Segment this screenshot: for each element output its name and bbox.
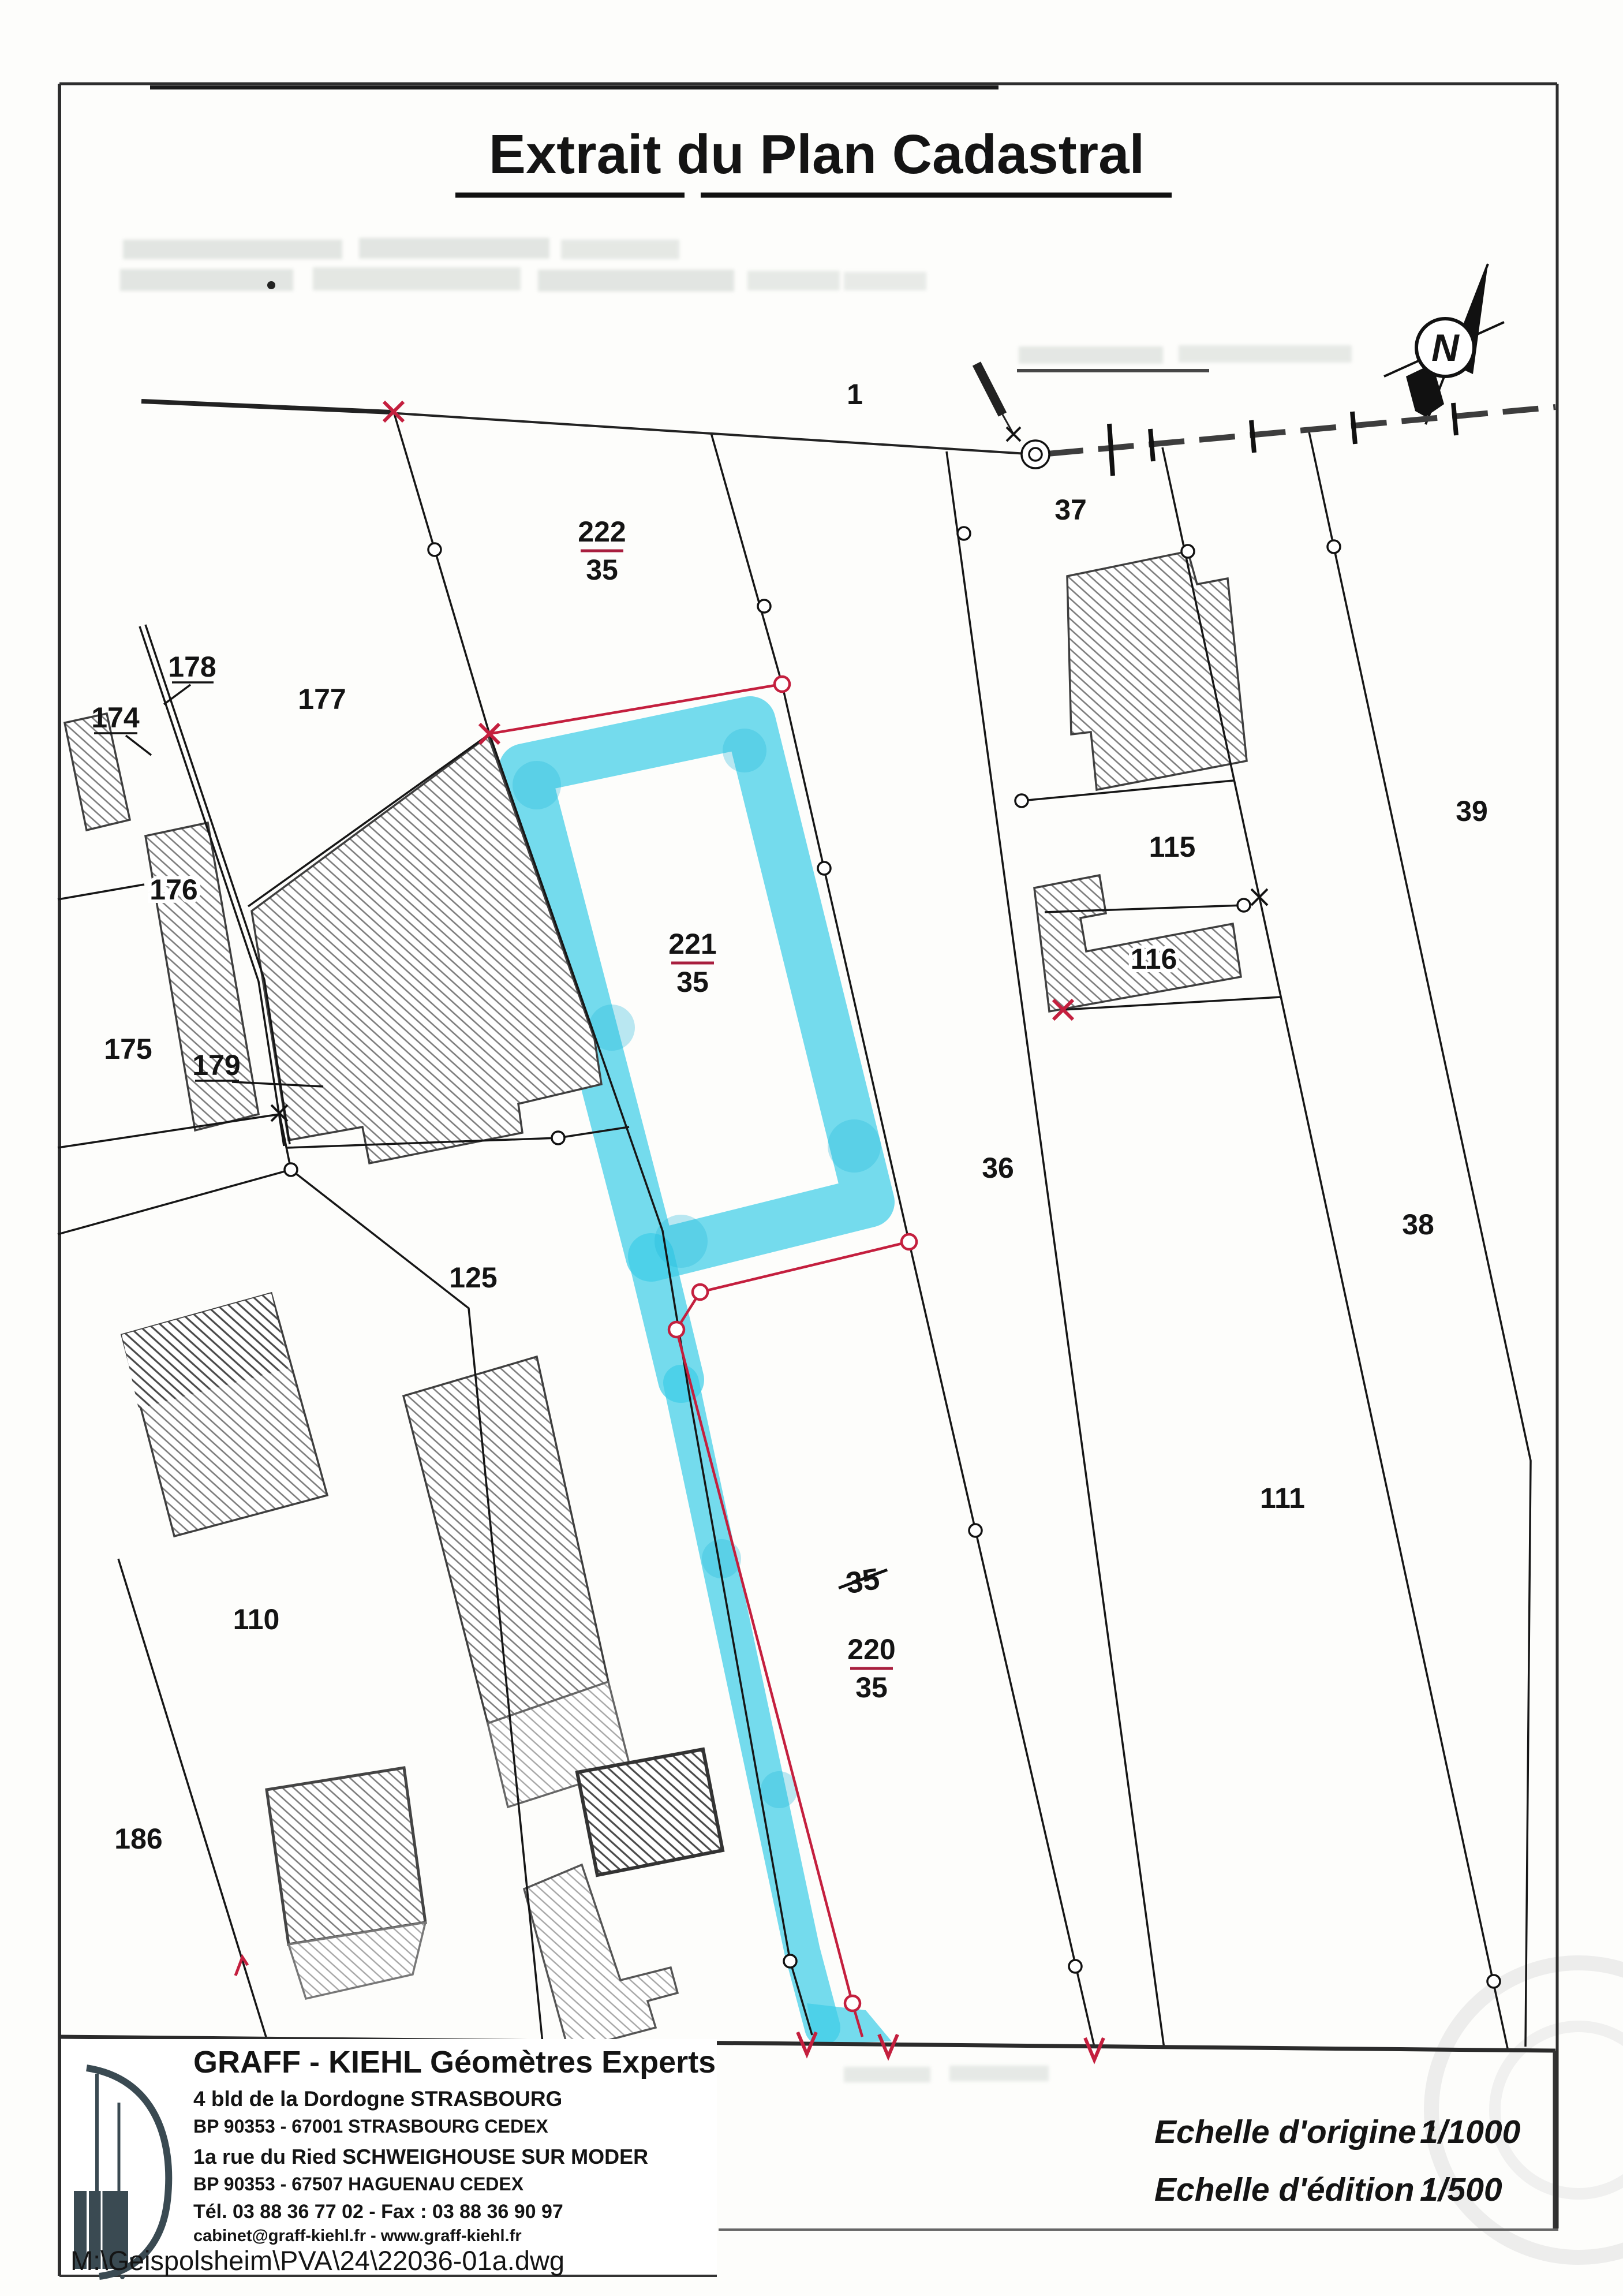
firm-web: cabinet@graff-kiehl.fr - www.graff-kiehl…	[193, 2227, 522, 2245]
firm-telfax: Tél. 03 88 36 77 02 - Fax : 03 88 36 90 …	[193, 2201, 563, 2223]
parcel-label-174: 174	[91, 701, 140, 734]
north-letter: N	[1431, 326, 1460, 369]
scale-edition-value: 1/500	[1420, 2171, 1502, 2208]
parcel-label-178: 178	[168, 651, 216, 683]
fraction-222-35: 222 35	[578, 516, 626, 586]
fraction-220-35: 220 35	[847, 1633, 895, 1704]
parcel-label-115: 115	[1149, 831, 1196, 863]
file-path: M:\Geispolsheim\PVA\24\22036-01a.dwg	[70, 2245, 564, 2276]
parcel-label-125: 125	[449, 1261, 497, 1294]
building-zigzag	[524, 1865, 678, 2051]
parcel-label-36: 36	[982, 1152, 1014, 1184]
scale-edition-label: Echelle d'édition :	[1154, 2171, 1434, 2208]
vertex-markers	[285, 440, 1500, 1988]
parcel-label-116: 116	[1131, 943, 1177, 975]
cadastral-sheet: Extrait du Plan Cadastral N	[0, 0, 1623, 2296]
fraction-den: 35	[855, 1671, 888, 1704]
parcel-label-186: 186	[114, 1823, 162, 1855]
faded-road-label	[1017, 345, 1352, 371]
north-arrow: N	[1384, 264, 1504, 424]
parcel-label-38: 38	[1402, 1208, 1434, 1241]
parcel-label-179: 179	[192, 1049, 240, 1081]
fraction-num: 220	[847, 1633, 895, 1666]
building-dark-block	[577, 1749, 723, 1875]
parcel-label-177: 177	[298, 683, 346, 715]
firm-block: GRAFF - KIEHL Géomètres Experts 4 bld de…	[59, 2039, 717, 2279]
road-double-circle-inner	[1029, 448, 1042, 461]
building-37	[1067, 551, 1247, 790]
fraction-den: 35	[676, 966, 709, 998]
faded-header-text	[120, 238, 926, 292]
stamp-watermark	[1431, 1963, 1623, 2257]
parcel-label-1: 1	[847, 378, 863, 410]
faded-street-label	[844, 2066, 1049, 2082]
frame-top-dark-band	[150, 85, 999, 89]
cadastral-map: Extrait du Plan Cadastral N	[0, 0, 1623, 2296]
parcel-label-110: 110	[233, 1603, 280, 1636]
firm-address-1: 4 bld de la Dordogne STRASBOURG	[193, 2087, 562, 2111]
fraction-den: 35	[586, 554, 618, 586]
stray-ink-dot	[267, 281, 275, 289]
building-186-block	[267, 1768, 425, 1944]
page-title: Extrait du Plan Cadastral	[489, 124, 1145, 185]
firm-address-4: BP 90353 - 67507 HAGUENAU CEDEX	[193, 2174, 524, 2194]
fraction-num: 222	[578, 516, 626, 548]
boundary-cross-ticks	[1109, 403, 1456, 476]
parcel-label-176: 176	[149, 873, 197, 906]
parcel-label-175: 175	[104, 1033, 152, 1065]
struck-parcel-label: 35	[836, 1560, 891, 1601]
parcel-label-37: 37	[1054, 494, 1087, 526]
building-176-narrow	[145, 823, 259, 1130]
parcel-label-111: 111	[1260, 1482, 1305, 1514]
parcel-label-39: 39	[1456, 795, 1488, 827]
boundary-flag-mark	[977, 364, 1003, 415]
scale-origin-value: 1/1000	[1420, 2114, 1521, 2151]
fraction-221-35: 221 35	[668, 928, 716, 998]
scale-origin-label: Echelle d'origine :	[1154, 2114, 1437, 2151]
struck-label-text: 35	[844, 1562, 882, 1600]
firm-name: GRAFF - KIEHL Géomètres Experts	[193, 2045, 716, 2080]
firm-address-3: 1a rue du Ried SCHWEIGHOUSE SUR MODER	[193, 2145, 648, 2168]
fraction-num: 221	[668, 928, 716, 960]
title-block: Extrait du Plan Cadastral	[455, 124, 1172, 195]
firm-address-2: BP 90353 - 67001 STRASBOURG CEDEX	[193, 2116, 548, 2137]
